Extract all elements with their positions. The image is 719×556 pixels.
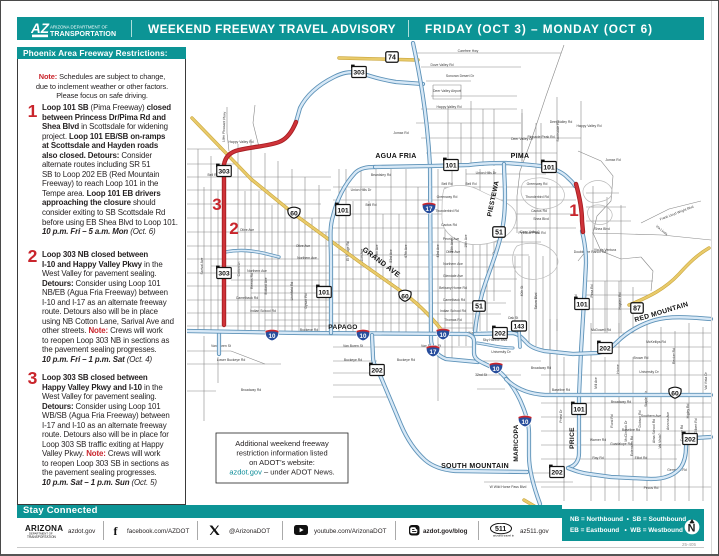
svg-text:Happy Valley Rd: Happy Valley Rd: [576, 124, 601, 128]
svg-text:Cactus Rd: Cactus Rd: [531, 209, 547, 213]
svg-text:67th Ave: 67th Ave: [404, 244, 408, 257]
svg-text:Litchfield Rd: Litchfield Rd: [290, 282, 294, 301]
svg-text:10: 10: [493, 366, 500, 373]
svg-text:PRICE: PRICE: [569, 427, 576, 449]
svg-text:MARICOPA: MARICOPA: [513, 424, 520, 461]
svg-text:Peoria Ave: Peoria Ave: [443, 237, 459, 241]
svg-text:Extension Rd: Extension Rd: [630, 436, 634, 456]
svg-text:Cotton Ln: Cotton Ln: [237, 262, 241, 277]
svg-text:f: f: [114, 525, 119, 536]
svg-text:McKellips Rd: McKellips Rd: [646, 340, 666, 344]
svg-text:60: 60: [290, 210, 298, 217]
svg-text:Bell Rd: Bell Rd: [366, 203, 377, 207]
svg-text:GRAND AVE: GRAND AVE: [361, 245, 402, 279]
svg-text:Bell Rd: Bell Rd: [442, 182, 453, 186]
svg-text:Northern Ave: Northern Ave: [247, 269, 267, 273]
svg-text:Greenway Rd: Greenway Rd: [527, 182, 548, 186]
svg-text:Alma School Rd: Alma School Rd: [652, 419, 656, 443]
svg-text:AZ: AZ: [31, 21, 50, 36]
svg-text:Deer Valley?: Deer Valley?: [520, 230, 539, 234]
svg-text:restriction information listed: restriction information listed: [236, 449, 327, 458]
svg-text:43rd Ave: 43rd Ave: [436, 244, 440, 257]
svg-text:Gilbert Rd: Gilbert Rd: [694, 418, 698, 433]
svg-text:Sarival Ave: Sarival Ave: [200, 257, 204, 274]
svg-text:40th St: 40th St: [520, 286, 524, 297]
svg-text:AGUA FRIA: AGUA FRIA: [375, 153, 416, 160]
svg-text:Deer Valley Airport: Deer Valley Airport: [433, 89, 461, 93]
svg-text:Camelback Rd: Camelback Rd: [236, 296, 258, 300]
svg-text:Olive Ave: Olive Ave: [296, 244, 310, 248]
svg-text:Hayden Rd: Hayden Rd: [618, 292, 622, 309]
svg-text:Jomax Rd: Jomax Rd: [605, 158, 620, 162]
svg-text:Scottsdale Rd: Scottsdale Rd: [556, 120, 560, 141]
svg-text:Happy Valley Rd: Happy Valley Rd: [228, 140, 253, 144]
svg-text:University Dr: University Dr: [491, 350, 511, 354]
svg-text:Beardsley Rd: Beardsley Rd: [371, 173, 391, 177]
svg-text:Elliot Rd: Elliot Rd: [635, 456, 648, 460]
svg-text:Stapley Dr: Stapley Dr: [644, 390, 648, 407]
svg-text:Shea Blvd: Shea Blvd: [594, 227, 610, 231]
svg-text:511: 511: [495, 526, 506, 533]
svg-text:17: 17: [426, 206, 433, 213]
svg-text:51: 51: [495, 230, 503, 237]
svg-text:Bethany Home Rd: Bethany Home Rd: [439, 286, 467, 290]
svg-text:Ray Rd: Ray Rd: [592, 456, 603, 460]
svg-text:2: 2: [229, 219, 238, 238]
svg-text:Thomas Rd: Thomas Rd: [444, 318, 462, 322]
svg-text:60: 60: [401, 293, 409, 300]
svg-text:Pinnacle Peak Rd: Pinnacle Peak Rd: [528, 135, 555, 139]
svg-text:101: 101: [337, 208, 349, 215]
svg-text:Reems Rd: Reems Rd: [250, 273, 254, 289]
svg-text:Val Vista?: Val Vista?: [658, 433, 662, 448]
svg-text:azdot.gov – under ADOT News.: azdot.gov – under ADOT News.: [229, 468, 334, 477]
svg-text:Van Buren St: Van Buren St: [343, 344, 363, 348]
svg-text:Deer Valley Rd: Deer Valley Rd: [550, 120, 573, 124]
svg-text:32nd St: 32nd St: [475, 373, 487, 377]
svg-text:ARIZONA DEPARTMENT OF: ARIZONA DEPARTMENT OF: [50, 25, 108, 30]
svg-text:303: 303: [353, 70, 365, 77]
svg-text:Happy Valley Rd: Happy Valley Rd: [436, 105, 461, 109]
svg-text:Broadway Rd: Broadway Rd: [611, 400, 631, 404]
svg-text:Camelback Rd: Camelback Rd: [443, 298, 465, 302]
svg-text:Rural Rd: Rural Rd: [610, 414, 614, 427]
svg-text:Greenway Rd: Greenway Rd: [437, 195, 458, 199]
svg-text:87: 87: [633, 306, 641, 313]
svg-text:Jomax Rd: Jomax Rd: [393, 131, 408, 135]
svg-text:Lake Pleasant Pkwy: Lake Pleasant Pkwy: [221, 111, 226, 142]
svg-text:Dove Valley Rd: Dove Valley Rd: [430, 63, 453, 67]
svg-text:10: 10: [360, 333, 367, 340]
svg-text:Olive Ave: Olive Ave: [240, 228, 254, 232]
svg-text:on ADOT’s website:: on ADOT’s website:: [249, 458, 315, 467]
svg-text:Oak St: Oak St: [508, 316, 518, 320]
svg-text:Brown Rd: Brown Rd: [634, 356, 649, 360]
svg-text:303: 303: [218, 271, 230, 278]
svg-text:SOUTH MOUNTAIN: SOUTH MOUNTAIN: [441, 463, 509, 470]
svg-text:19th Ave: 19th Ave: [464, 234, 468, 247]
svg-text:Carefree Hwy: Carefree Hwy: [458, 49, 479, 53]
svg-text:143: 143: [514, 324, 525, 331]
svg-text:N: N: [688, 523, 696, 535]
svg-text:202: 202: [551, 470, 563, 477]
svg-text:Northern Ave: Northern Ave: [297, 256, 317, 260]
svg-text:101: 101: [318, 290, 330, 297]
svg-text:Baseline Rd: Baseline Rd: [552, 388, 570, 392]
svg-text:PIMA: PIMA: [511, 153, 530, 160]
svg-text:202: 202: [371, 368, 383, 375]
svg-text:McClintock Dr: McClintock Dr: [624, 420, 628, 442]
svg-text:Cactus Rd: Cactus Rd: [441, 223, 457, 227]
svg-text:Lower Buckeye Rd: Lower Buckeye Rd: [217, 358, 246, 362]
svg-text:Northern Ave: Northern Ave: [443, 262, 463, 266]
svg-text:Olive Ave: Olive Ave: [446, 250, 460, 254]
svg-text:Union Hills Dr: Union Hills Dr: [351, 188, 373, 192]
svg-text:Val Vista Dr: Val Vista Dr: [704, 371, 708, 389]
svg-text:W Wild Horse Pass Blvd: W Wild Horse Pass Blvd: [490, 485, 527, 489]
svg-text:Shea Blvd: Shea Blvd: [533, 217, 549, 221]
svg-text:1: 1: [569, 201, 578, 220]
svg-text:TRANSPORTATION: TRANSPORTATION: [27, 535, 57, 539]
svg-text:3: 3: [212, 195, 221, 214]
svg-text:Pecos Rd: Pecos Rd: [644, 486, 659, 490]
svg-text:17: 17: [430, 349, 437, 356]
svg-text:Bullard Ave: Bullard Ave: [264, 277, 268, 294]
svg-text:Thunderbird Rd: Thunderbird Rd: [525, 195, 549, 199]
svg-text:Additional weekend freeway: Additional weekend freeway: [235, 439, 329, 448]
svg-text:Dobson Rd: Dobson Rd: [638, 410, 642, 427]
svg-text:Doubletree Ranch Rd: Doubletree Ranch Rd: [574, 250, 607, 254]
svg-text:Mill Ave: Mill Ave: [594, 377, 598, 389]
svg-text:10: 10: [440, 332, 447, 339]
svg-text:Sonoran Desert Dr: Sonoran Desert Dr: [446, 74, 475, 78]
svg-text:PAPAGO: PAPAGO: [328, 324, 357, 331]
svg-text:101: 101: [576, 302, 588, 309]
svg-text:Indian School Rd: Indian School Rd: [440, 309, 466, 313]
svg-text:101: 101: [573, 407, 585, 414]
svg-text:University Dr: University Dr: [639, 370, 659, 374]
svg-text:Southern Ave: Southern Ave: [641, 414, 661, 418]
svg-text:202: 202: [599, 346, 611, 353]
svg-text:83rd Ave: 83rd Ave: [389, 249, 393, 262]
svg-text:101: 101: [445, 163, 457, 170]
svg-text:303: 303: [218, 169, 230, 176]
svg-text:74: 74: [388, 55, 396, 62]
svg-text:202: 202: [494, 331, 506, 338]
svg-text:Tatum Blvd: Tatum Blvd: [534, 293, 538, 310]
svg-text:101: 101: [543, 165, 555, 172]
svg-text:TRANSPORTATION: TRANSPORTATION: [50, 31, 116, 38]
svg-text:Buckeye Rd: Buckeye Rd: [344, 358, 362, 362]
svg-text:202: 202: [684, 437, 696, 444]
svg-text:Broadway Rd: Broadway Rd: [241, 388, 261, 392]
svg-text:Priest Dr: Priest Dr: [559, 409, 563, 423]
svg-text:60: 60: [671, 390, 679, 397]
svg-text:10: 10: [269, 333, 276, 340]
svg-text:Dysart Rd: Dysart Rd: [304, 293, 308, 308]
svg-text:Broadway Rd: Broadway Rd: [531, 366, 551, 370]
svg-text:51: 51: [475, 304, 483, 311]
svg-text:Via Linda: Via Linda: [655, 224, 668, 236]
svg-text:Higley Rd: Higley Rd: [686, 404, 690, 419]
svg-text:Buckeye Rd: Buckeye Rd: [397, 358, 415, 362]
svg-text:10: 10: [522, 419, 529, 426]
svg-text:Bell Rd: Bell Rd: [466, 182, 477, 186]
svg-text:Arizona Ave: Arizona Ave: [666, 412, 670, 430]
svg-text:Indian School Rd: Indian School Rd: [250, 309, 276, 313]
svg-text:arizona travel info: arizona travel info: [493, 534, 514, 538]
svg-text:Recker Rd: Recker Rd: [672, 348, 676, 364]
svg-text:Union Hills Dr: Union Hills Dr: [476, 171, 498, 175]
svg-text:Glendale Ave: Glendale Ave: [443, 274, 463, 278]
svg-text:McDowell Rd: McDowell Rd: [591, 328, 611, 332]
svg-text:Pima Rd: Pima Rd: [590, 284, 594, 297]
svg-text:Warner Rd: Warner Rd: [590, 438, 606, 442]
svg-text:Thunderbird Rd: Thunderbird Rd: [435, 209, 459, 213]
svg-text:Horne: Horne: [616, 364, 620, 373]
svg-text:Guadalupe Rd: Guadalupe Rd: [610, 442, 632, 446]
